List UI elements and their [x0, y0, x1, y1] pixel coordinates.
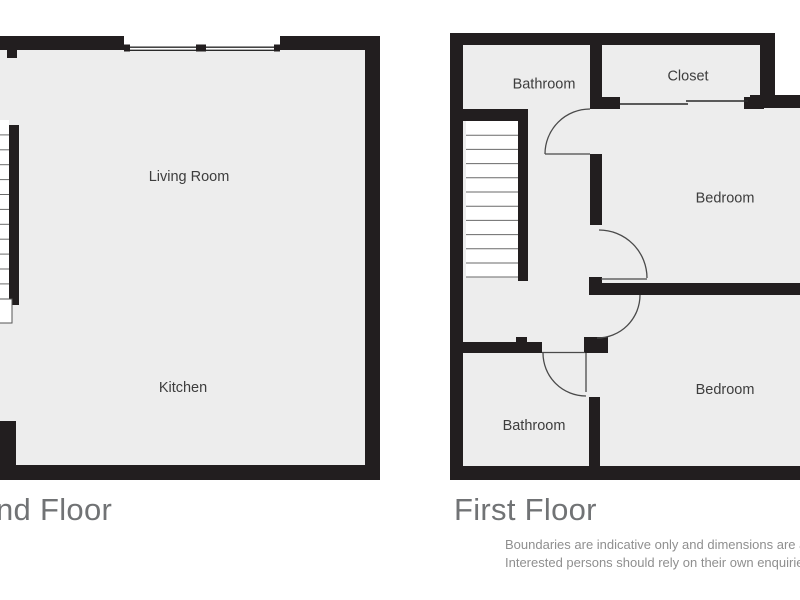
wall-segment: [584, 337, 608, 353]
room-label-bathroom-top: Bathroom: [513, 77, 576, 93]
disclaimer-line-2: Interested persons should rely on their …: [505, 554, 800, 572]
floorplan-page: Living Room Kitchen: [0, 0, 800, 600]
wall-segment: [450, 33, 775, 45]
door-leaf: [0, 299, 12, 323]
room-label-bathroom-bottom: Bathroom: [503, 418, 566, 434]
room-label-kitchen: Kitchen: [159, 380, 207, 396]
wall-stub: [7, 50, 17, 58]
stair-wall: [9, 125, 19, 305]
staircase: [0, 120, 19, 323]
exterior-notch: [775, 30, 800, 95]
wall-segment: [450, 342, 542, 353]
closet-wall: [590, 97, 620, 109]
window-jamb: [274, 45, 280, 52]
wall-stub: [516, 337, 527, 342]
room-label-living-room: Living Room: [149, 169, 230, 185]
wall-segment: [0, 421, 16, 480]
disclaimer-text: Boundaries are indicative only and dimen…: [505, 536, 800, 571]
stair-treads-area: [466, 121, 518, 277]
wall-segment: [450, 466, 800, 480]
wall-segment: [0, 36, 124, 50]
first-floor-plan: Bathroom Closet Bedroom Bedroom Bathroom: [450, 30, 800, 480]
wall-segment: [14, 465, 380, 480]
window: [124, 36, 280, 52]
staircase: [466, 121, 518, 277]
ground-floor-area: [0, 44, 371, 471]
wall-segment: [589, 397, 600, 467]
window-jamb: [124, 45, 130, 52]
wall-segment: [450, 33, 463, 480]
window-mullion: [196, 45, 206, 52]
room-label-closet: Closet: [667, 69, 708, 85]
room-label-bedroom-bottom: Bedroom: [696, 382, 755, 398]
floor-plans-canvas: Living Room Kitchen: [0, 0, 800, 600]
room-label-bedroom-top: Bedroom: [696, 191, 755, 207]
ground-floor-title: nd Floor: [0, 492, 112, 528]
disclaimer-line-1: Boundaries are indicative only and dimen…: [505, 536, 800, 554]
wall-segment: [760, 33, 775, 97]
first-floor-title: First Floor: [454, 492, 597, 528]
stair-wall: [518, 109, 528, 281]
wall-segment: [590, 154, 602, 225]
ground-floor-plan: Living Room Kitchen: [0, 36, 380, 480]
wall-segment: [365, 36, 380, 480]
closet-wall: [744, 97, 764, 109]
bedroom-divider-wall: [589, 283, 800, 295]
